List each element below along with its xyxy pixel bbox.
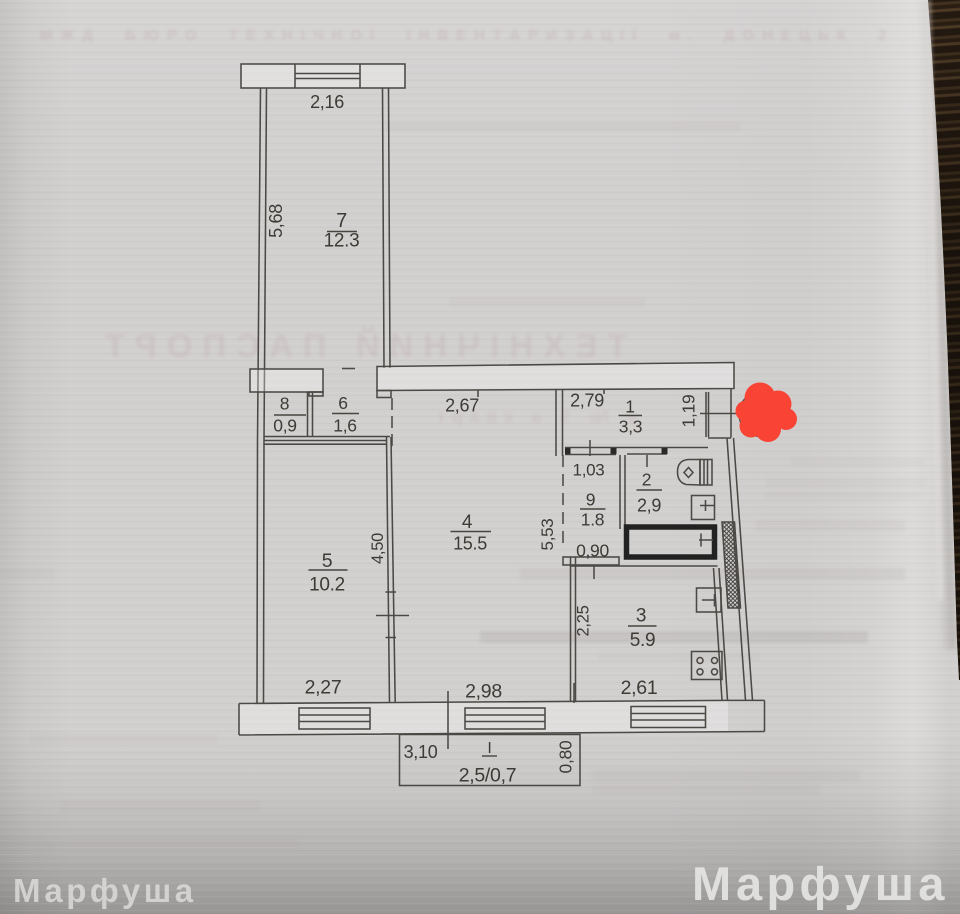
svg-text:2,79: 2,79 — [570, 391, 604, 411]
svg-text:2,5/0,7: 2,5/0,7 — [459, 765, 517, 787]
svg-text:I: I — [487, 740, 491, 757]
svg-text:5,68: 5,68 — [266, 204, 286, 238]
svg-text:5.9: 5.9 — [630, 630, 656, 651]
svg-text:8: 8 — [280, 394, 289, 414]
svg-text:9: 9 — [586, 490, 595, 510]
svg-text:2: 2 — [642, 470, 651, 490]
svg-text:0,80: 0,80 — [555, 740, 575, 773]
svg-text:1,6: 1,6 — [333, 416, 356, 436]
svg-text:1.8: 1.8 — [581, 510, 604, 530]
svg-text:2,67: 2,67 — [445, 396, 479, 416]
svg-text:12.3: 12.3 — [324, 231, 360, 252]
svg-text:1: 1 — [625, 397, 634, 417]
svg-text:7: 7 — [336, 210, 347, 232]
svg-text:4,50: 4,50 — [369, 533, 387, 564]
svg-text:10.2: 10.2 — [309, 575, 345, 596]
svg-text:3,3: 3,3 — [619, 417, 642, 437]
svg-text:2,9: 2,9 — [637, 496, 661, 516]
svg-text:1,03: 1,03 — [573, 461, 605, 480]
svg-text:6: 6 — [338, 393, 347, 413]
svg-text:3: 3 — [636, 606, 646, 627]
svg-text:0,90: 0,90 — [576, 541, 609, 561]
svg-text:4: 4 — [462, 512, 473, 533]
svg-text:2,98: 2,98 — [465, 681, 502, 703]
svg-text:2,25: 2,25 — [575, 605, 593, 636]
svg-text:2,16: 2,16 — [310, 92, 344, 112]
svg-text:5: 5 — [322, 550, 333, 572]
svg-text:3,10: 3,10 — [404, 742, 438, 762]
svg-text:2,27: 2,27 — [305, 677, 342, 699]
svg-text:1,19: 1,19 — [678, 395, 698, 428]
svg-text:5,53: 5,53 — [538, 519, 557, 551]
svg-text:0,9: 0,9 — [273, 416, 296, 436]
svg-text:15.5: 15.5 — [453, 534, 487, 554]
svg-text:2,61: 2,61 — [621, 677, 658, 699]
